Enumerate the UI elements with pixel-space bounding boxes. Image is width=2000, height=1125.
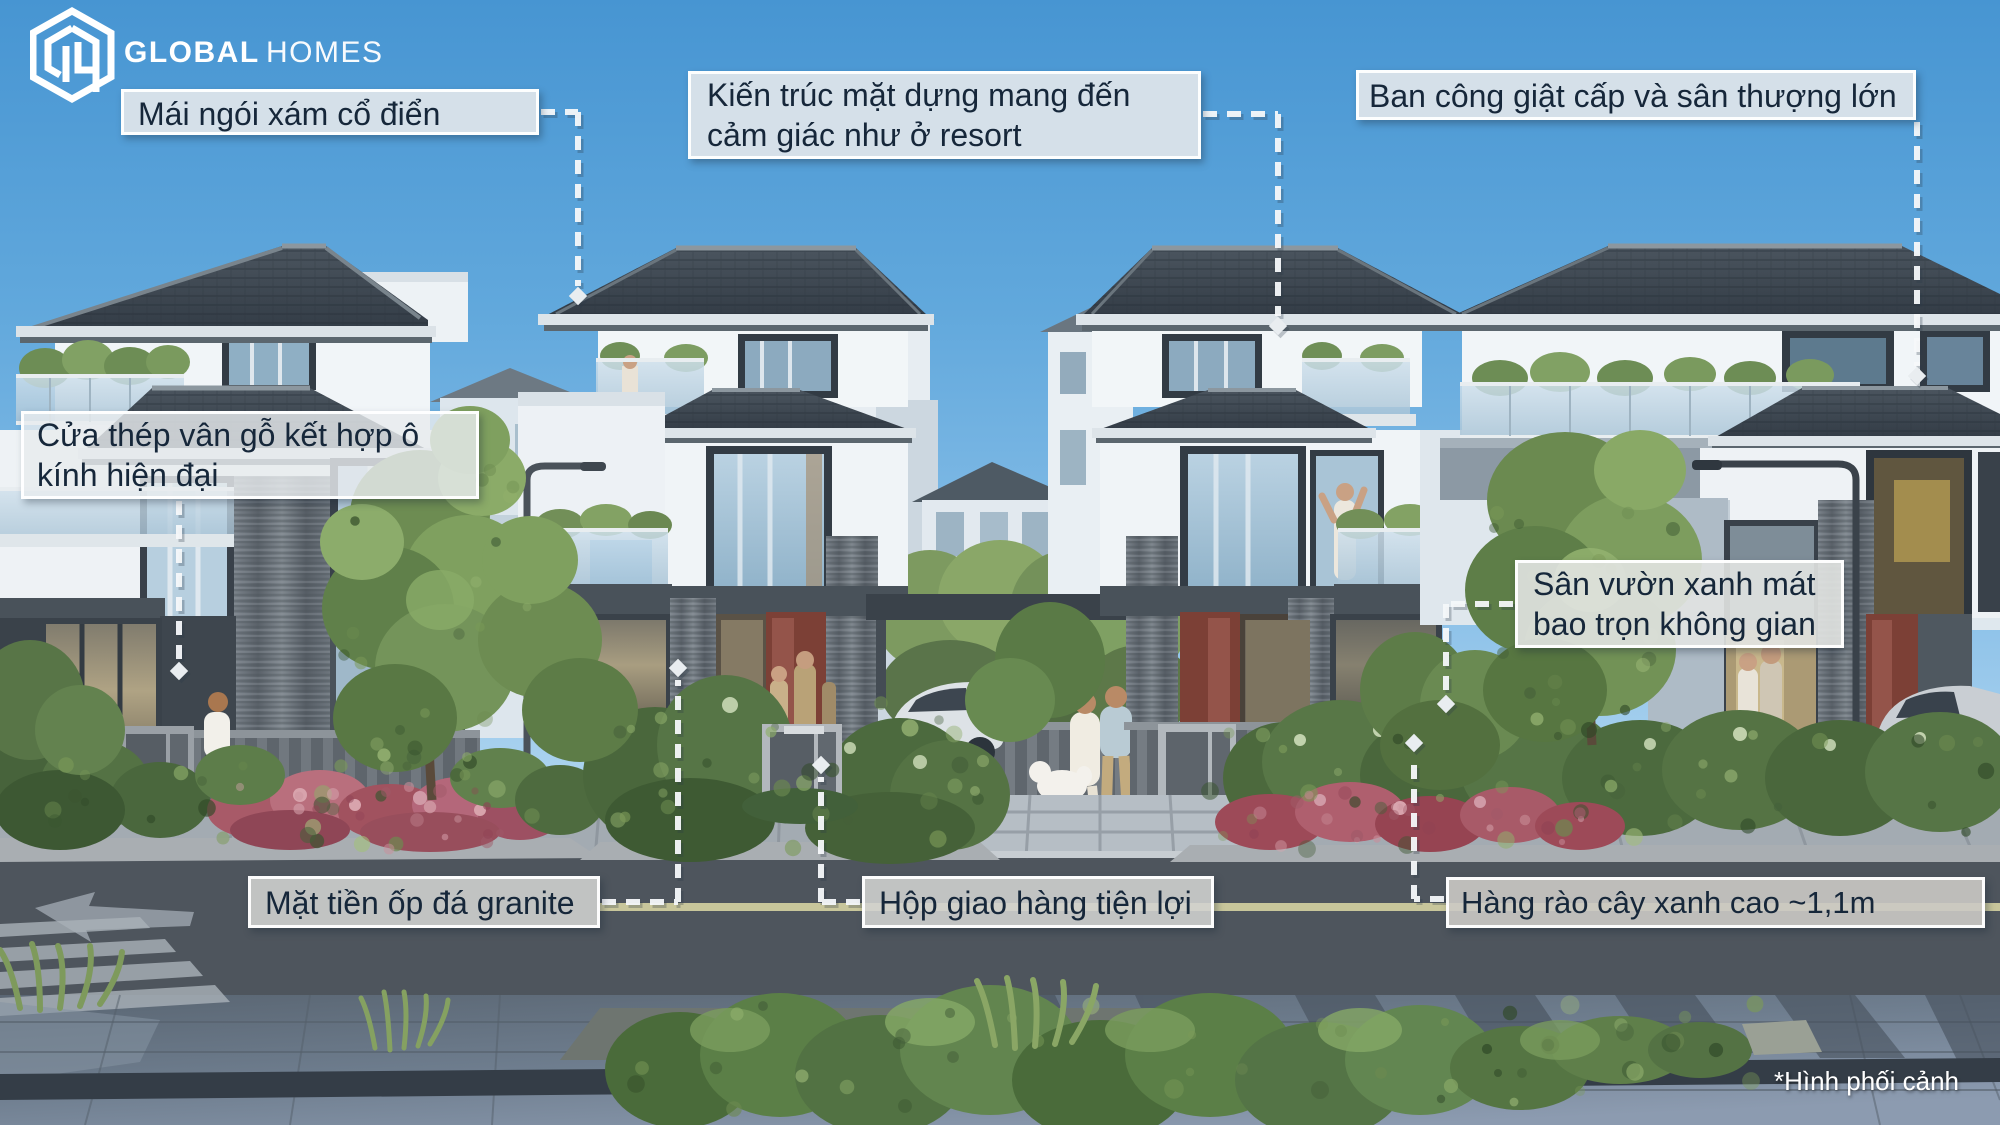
svg-text:HOMES: HOMES [266,36,384,69]
svg-text:GLOBAL: GLOBAL [124,36,260,69]
